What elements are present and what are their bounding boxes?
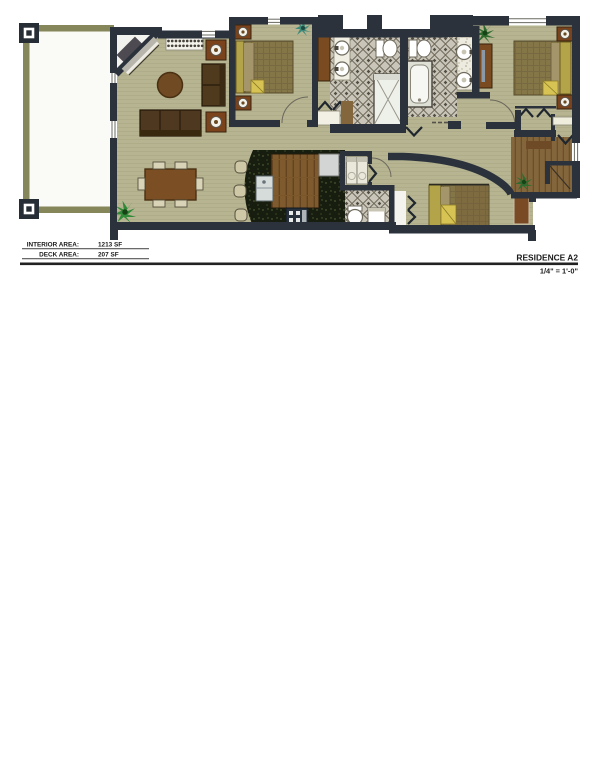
svg-text:1213 SF: 1213 SF xyxy=(98,242,122,249)
svg-text:DECK AREA:: DECK AREA: xyxy=(39,252,79,259)
svg-text:INTERIOR AREA:: INTERIOR AREA: xyxy=(27,242,79,249)
svg-text:1/4" = 1'-0": 1/4" = 1'-0" xyxy=(540,267,579,276)
svg-text:RESIDENCE A2: RESIDENCE A2 xyxy=(516,253,578,263)
svg-text:207 SF: 207 SF xyxy=(98,252,119,259)
